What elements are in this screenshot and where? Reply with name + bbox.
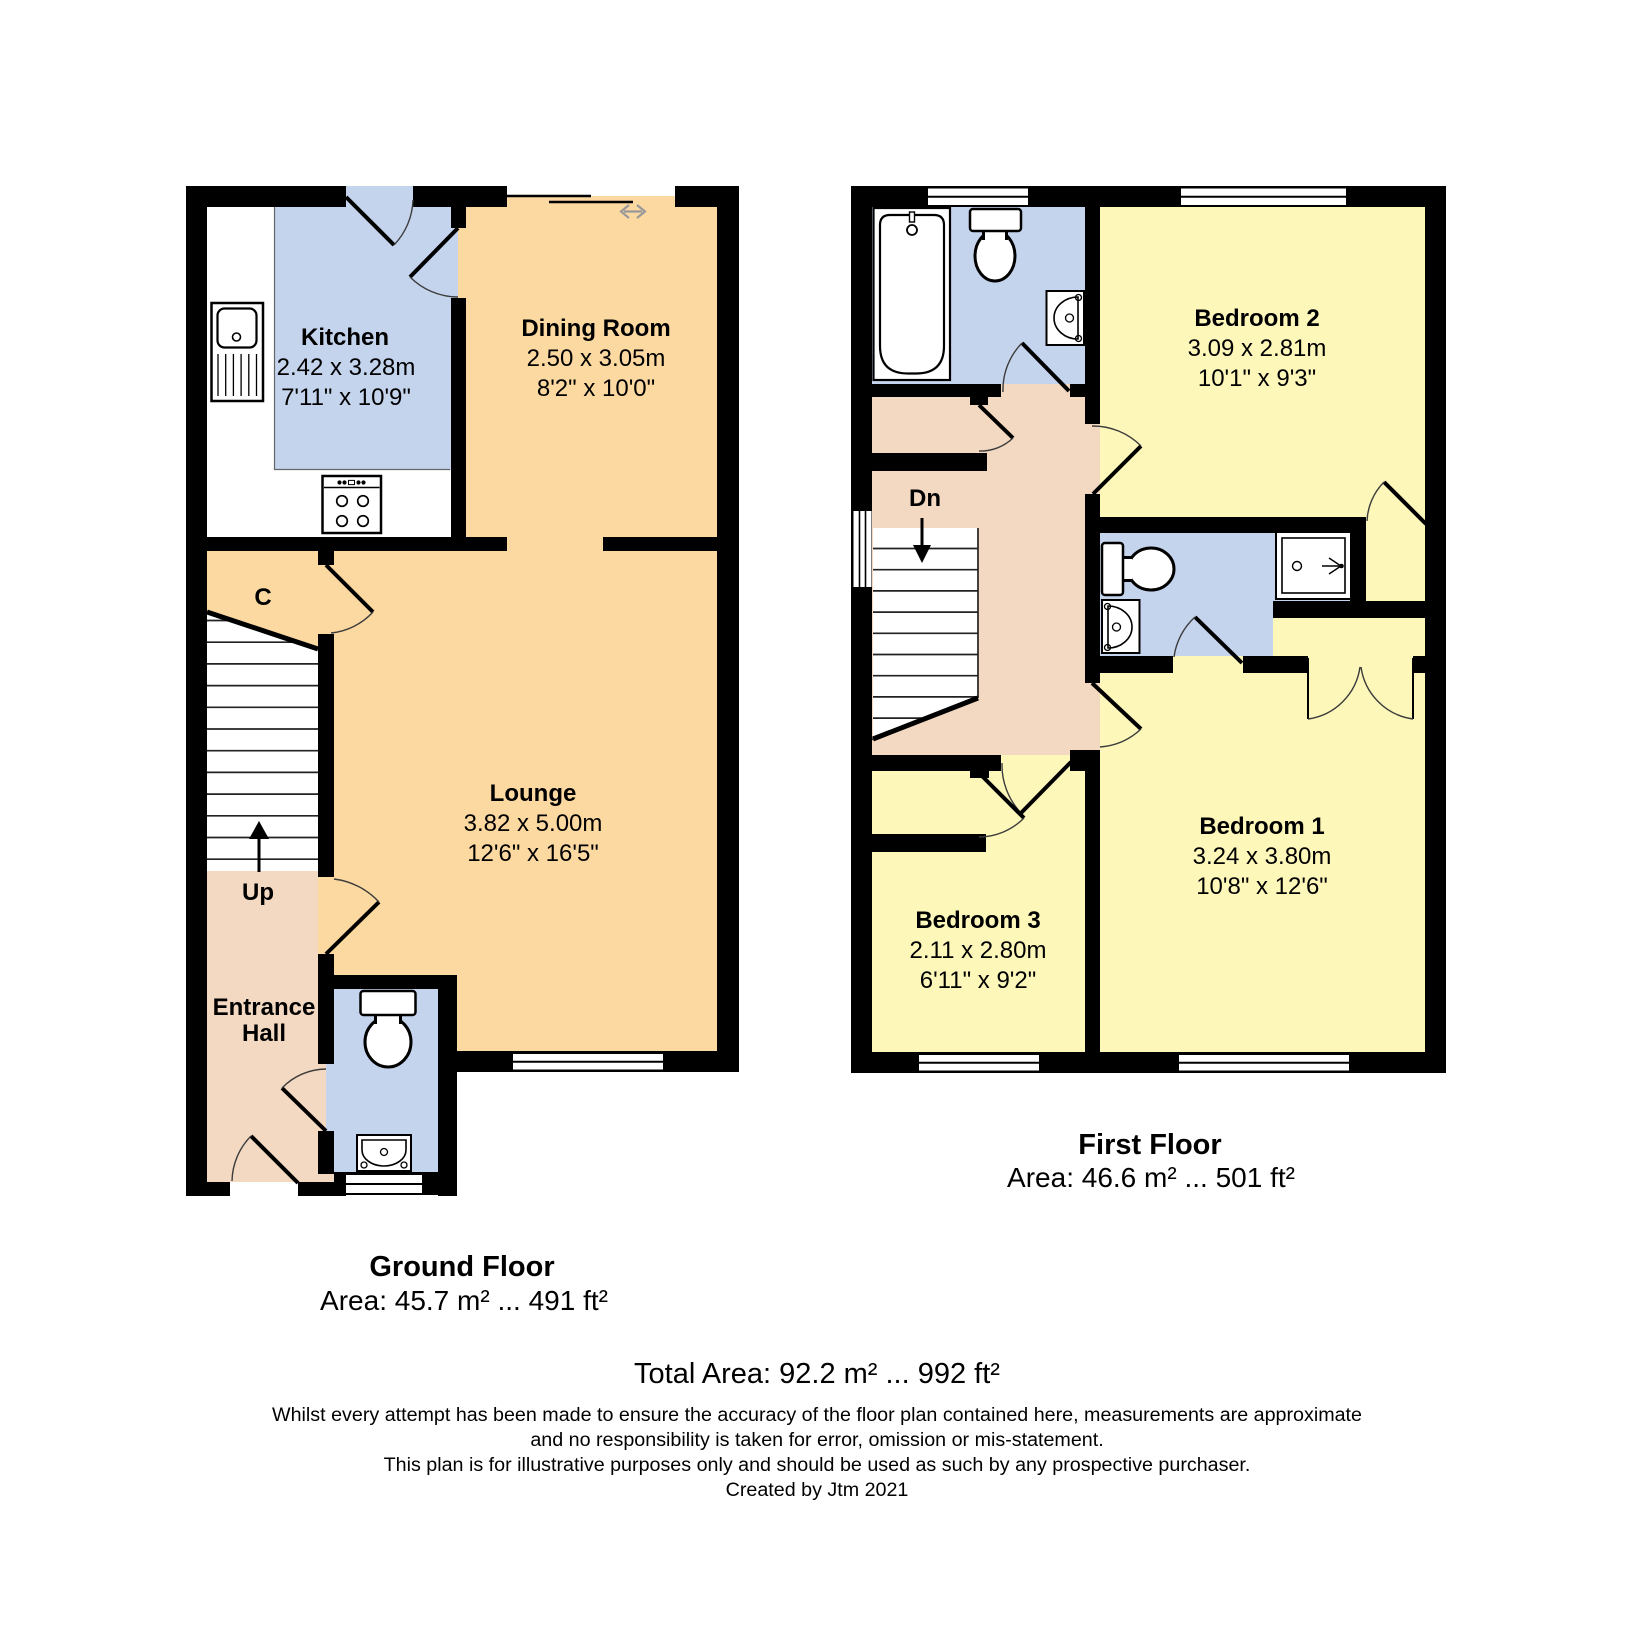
- svg-text:First Floor: First Floor: [1078, 1129, 1221, 1161]
- svg-text:C: C: [254, 584, 271, 611]
- svg-text:3.82 x 5.00m: 3.82 x 5.00m: [464, 810, 603, 837]
- svg-text:Bedroom 2: Bedroom 2: [1194, 305, 1319, 332]
- svg-text:Up: Up: [242, 879, 274, 906]
- svg-text:3.09 x 2.81m: 3.09 x 2.81m: [1188, 335, 1327, 362]
- svg-text:Area: 46.6 m² ... 501 ft²: Area: 46.6 m² ... 501 ft²: [1007, 1162, 1295, 1193]
- svg-text:Ground Floor: Ground Floor: [369, 1251, 554, 1283]
- svg-text:Bedroom 3: Bedroom 3: [915, 907, 1040, 934]
- svg-text:10'8" x 12'6": 10'8" x 12'6": [1196, 873, 1328, 900]
- svg-text:This plan is for illustrative: This plan is for illustrative purposes o…: [384, 1454, 1251, 1476]
- svg-text:2.50 x 3.05m: 2.50 x 3.05m: [527, 345, 666, 372]
- svg-text:Entrance: Entrance: [213, 994, 316, 1021]
- svg-text:and no responsibility is taken: and no responsibility is taken for error…: [530, 1429, 1103, 1451]
- svg-text:Area: 45.7 m² ... 491 ft²: Area: 45.7 m² ... 491 ft²: [320, 1285, 608, 1316]
- svg-text:Created by Jtm 2021: Created by Jtm 2021: [726, 1479, 909, 1501]
- svg-text:7'11" x 10'9": 7'11" x 10'9": [281, 384, 411, 411]
- svg-text:2.11 x 2.80m: 2.11 x 2.80m: [910, 937, 1047, 964]
- svg-text:Whilst every attempt has been: Whilst every attempt has been made to en…: [272, 1404, 1362, 1426]
- svg-text:Dining Room: Dining Room: [521, 315, 670, 342]
- svg-text:Lounge: Lounge: [490, 780, 577, 807]
- svg-text:6'11" x 9'2": 6'11" x 9'2": [920, 967, 1037, 994]
- svg-text:10'1" x 9'3": 10'1" x 9'3": [1198, 365, 1316, 392]
- svg-text:12'6" x 16'5": 12'6" x 16'5": [467, 840, 599, 867]
- svg-text:Dn: Dn: [909, 485, 941, 512]
- svg-text:8'2" x 10'0": 8'2" x 10'0": [537, 375, 655, 402]
- svg-text:Bedroom 1: Bedroom 1: [1199, 813, 1324, 840]
- svg-text:3.24 x 3.80m: 3.24 x 3.80m: [1193, 843, 1332, 870]
- svg-text:Kitchen: Kitchen: [301, 324, 389, 351]
- svg-text:Hall: Hall: [242, 1020, 286, 1047]
- svg-text:2.42 x 3.28m: 2.42 x 3.28m: [277, 354, 416, 381]
- svg-text:Total Area: 92.2 m² ... 992 ft: Total Area: 92.2 m² ... 992 ft²: [634, 1358, 1000, 1390]
